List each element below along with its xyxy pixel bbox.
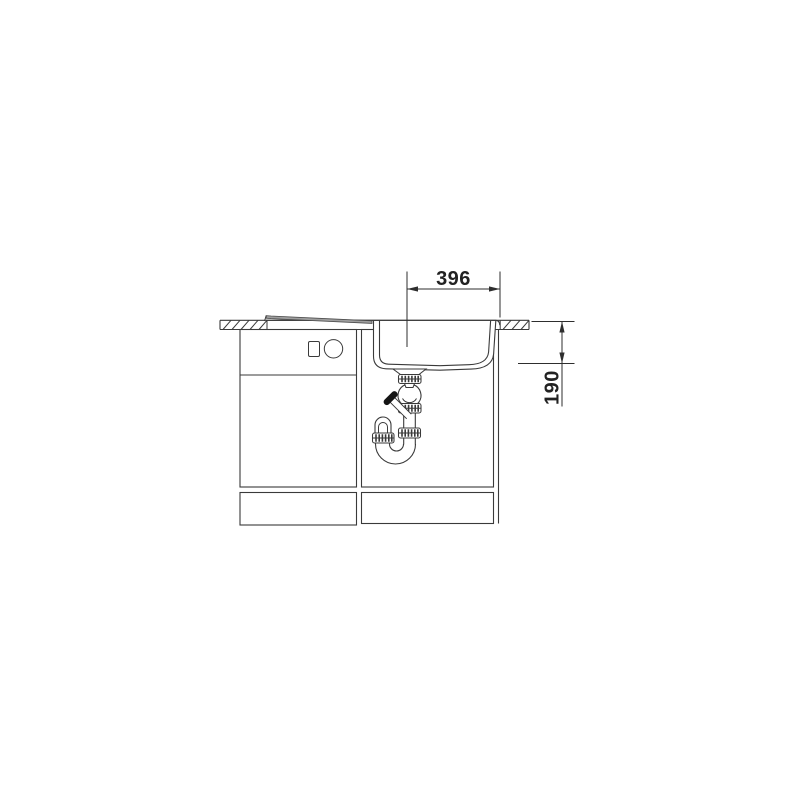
dim396-label: 396 (436, 268, 471, 290)
drain-assembly (373, 369, 427, 464)
dim190-arrow-up (559, 322, 564, 333)
dim190-arrow-down (559, 353, 564, 364)
sink-bowl-body (374, 321, 496, 370)
sink (265, 316, 500, 371)
sink-installation-diagram: 396 190 (0, 0, 800, 800)
dim190-label: 190 (542, 370, 564, 405)
drain-neck (405, 384, 415, 388)
cabinet-right-plinth (362, 493, 494, 524)
technical-drawing: 396 190 (0, 0, 800, 800)
sink-drainer (266, 316, 372, 324)
cabinet-control-circle (324, 340, 342, 358)
slip-nut-upper (399, 375, 422, 384)
base-cabinet-left (240, 330, 357, 526)
p-trap-u-bend (376, 443, 416, 464)
trap-arm-dome (375, 417, 391, 433)
cabinet-control-square (309, 342, 320, 357)
dimension-vertical: 190 (518, 322, 575, 407)
slip-nut-trap (373, 433, 395, 443)
sink-rim-right (496, 320, 500, 325)
dim396-arrow-left (407, 286, 418, 291)
hatch-right (503, 320, 529, 329)
tailpipe-lower (404, 438, 416, 445)
slip-nut-pipe (399, 428, 421, 438)
drain-flange (393, 369, 426, 375)
hatch-left (223, 320, 267, 329)
cabinet-left-plinth (240, 493, 357, 526)
dim396-arrow-right (489, 286, 500, 291)
cabinet-left-door (240, 330, 357, 488)
